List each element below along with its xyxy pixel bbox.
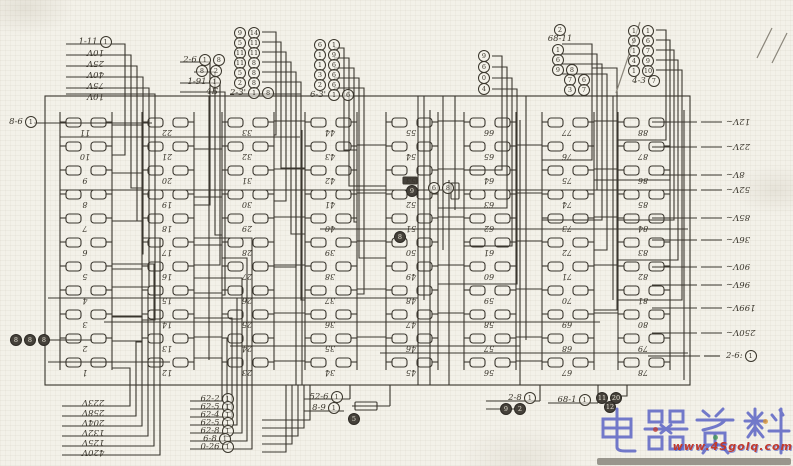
terminal-lug xyxy=(392,166,407,175)
rotated-label: 250V~ xyxy=(726,327,755,337)
terminal-number: 82 xyxy=(633,272,653,281)
rotated-label: 12V~ xyxy=(726,116,750,126)
inline-circle: 6 xyxy=(428,182,440,194)
code-label: 1-11 xyxy=(78,37,97,47)
terminal-lug xyxy=(548,310,563,319)
terminal-number: 60 xyxy=(479,272,499,281)
terminal-number: 20 xyxy=(157,176,177,185)
terminal-lug xyxy=(66,166,81,175)
pencil-mark xyxy=(772,33,787,63)
terminal-lug xyxy=(311,262,326,271)
rotated-label: 90V~ xyxy=(726,261,750,271)
circled-number: 1 xyxy=(579,394,591,406)
terminal-lug xyxy=(573,214,588,223)
terminal-lug xyxy=(336,190,351,199)
rotated-label: 132V xyxy=(82,427,104,437)
terminal-number: 74 xyxy=(557,200,577,209)
terminal-number: 35 xyxy=(320,344,340,353)
terminal-lug xyxy=(624,286,639,295)
wire xyxy=(334,78,386,258)
circled-number: 4 xyxy=(478,83,490,95)
terminal-number: 59 xyxy=(479,296,499,305)
terminal-lug xyxy=(228,262,243,271)
terminal-number: 46 xyxy=(401,344,421,353)
terminal-number: 1 xyxy=(75,368,95,377)
terminal-lug xyxy=(470,262,485,271)
terminal-lug xyxy=(548,142,563,151)
terminal-number: 36 xyxy=(320,320,340,329)
label-row: 68-11 xyxy=(532,34,588,44)
terminal-lug xyxy=(228,190,243,199)
terminal-number: 9 xyxy=(75,176,95,185)
inline-circle: 8 xyxy=(394,231,406,243)
terminal-lug xyxy=(392,262,407,271)
rotated-label: 10V xyxy=(87,47,104,57)
label-row: 132V xyxy=(62,427,124,437)
terminal-lug xyxy=(91,238,106,247)
terminal-lug xyxy=(392,118,407,127)
terminal-lug xyxy=(336,238,351,247)
terminal-number: 45 xyxy=(401,368,421,377)
scanned-wiring-diagram-page: 1110987654321222120191817161514131233323… xyxy=(0,0,793,466)
terminal-lug xyxy=(91,286,106,295)
terminal-lug xyxy=(173,238,188,247)
terminal-number: 2 xyxy=(75,344,95,353)
terminal-number: 53 xyxy=(401,176,421,185)
label-row: 85V~ xyxy=(726,212,780,222)
terminal-lug xyxy=(470,358,485,367)
terminal-lug xyxy=(228,238,243,247)
label-row: 37 xyxy=(532,84,620,96)
terminal-lug xyxy=(173,286,188,295)
terminal-number: 78 xyxy=(633,368,653,377)
terminal-lug xyxy=(470,214,485,223)
terminal-lug xyxy=(66,334,81,343)
terminal-lug xyxy=(311,118,326,127)
terminal-lug xyxy=(173,214,188,223)
terminal-number: 66 xyxy=(479,128,499,137)
terminal-lug xyxy=(573,310,588,319)
terminal-lug xyxy=(91,310,106,319)
terminal-lug xyxy=(311,310,326,319)
terminal-lug xyxy=(253,142,268,151)
terminal-number: 67 xyxy=(557,368,577,377)
terminal-lug xyxy=(253,118,268,127)
terminal-number: 64 xyxy=(479,176,499,185)
label-row: 4 xyxy=(478,83,500,95)
terminal-lug xyxy=(66,142,81,151)
pencil-mark xyxy=(757,28,772,58)
code-label: 1-91 xyxy=(187,77,206,87)
label-row: 223V xyxy=(62,397,124,407)
rotated-label: 52V~ xyxy=(726,184,750,194)
terminal-lug xyxy=(91,142,106,151)
watermark-url: www.4Sgolq.com xyxy=(673,440,793,453)
terminal-lug xyxy=(573,262,588,271)
terminal-lug xyxy=(66,310,81,319)
wire xyxy=(618,70,682,300)
terminal-number: 25 xyxy=(237,320,257,329)
circled-number: 8 xyxy=(24,334,36,346)
terminal-lug xyxy=(91,190,106,199)
terminal-lug xyxy=(495,214,510,223)
terminal-lug xyxy=(548,190,563,199)
terminal-lug xyxy=(624,190,639,199)
label-row: 4-37 xyxy=(628,75,664,87)
label-row: 2-3'18 xyxy=(234,87,270,99)
terminal-number: 75 xyxy=(557,176,577,185)
terminal-number: 22 xyxy=(157,128,177,137)
circled-number: 1 xyxy=(248,87,260,99)
terminal-number: 42 xyxy=(320,176,340,185)
terminal-lug xyxy=(392,334,407,343)
rotated-label: 420V xyxy=(82,447,104,457)
terminal-lug xyxy=(91,166,106,175)
code-label: 6-3' xyxy=(310,90,326,100)
circled-number: 1 xyxy=(328,89,340,101)
rotated-label: 25V xyxy=(87,58,104,68)
terminal-lug xyxy=(470,190,485,199)
terminal-number: 15 xyxy=(157,296,177,305)
terminal-lug xyxy=(624,214,639,223)
terminal-number: 19 xyxy=(157,200,177,209)
terminal-number: 83 xyxy=(633,248,653,257)
circled-number: 5 xyxy=(348,413,360,425)
terminal-lug xyxy=(573,334,588,343)
terminal-lug xyxy=(470,310,485,319)
terminal-number: 13 xyxy=(157,344,177,353)
terminal-lug xyxy=(392,310,407,319)
terminal-lug xyxy=(649,166,664,175)
terminal-number: 17 xyxy=(157,248,177,257)
terminal-lug xyxy=(548,286,563,295)
circled-number: 6 xyxy=(428,182,440,194)
terminal-lug xyxy=(392,286,407,295)
terminal-lug xyxy=(91,262,106,271)
terminal-lug xyxy=(253,214,268,223)
terminal-lug xyxy=(91,214,106,223)
terminal-lug xyxy=(173,334,188,343)
watermark-underline-bar xyxy=(597,458,791,465)
terminal-lug xyxy=(253,334,268,343)
terminal-lug xyxy=(495,358,510,367)
terminal-lug xyxy=(311,238,326,247)
label-row: 199V~ xyxy=(726,302,780,312)
terminal-lug xyxy=(253,190,268,199)
terminal-lug xyxy=(148,334,163,343)
terminal-number: 56 xyxy=(479,368,499,377)
label-row: 36V~ xyxy=(726,234,780,244)
rotated-label: 96V~ xyxy=(726,279,750,289)
terminal-lug xyxy=(173,190,188,199)
terminal-lug xyxy=(336,358,351,367)
label-row: 250V~ xyxy=(726,327,780,337)
wire xyxy=(464,78,512,246)
terminal-number: 41 xyxy=(320,200,340,209)
terminal-lug xyxy=(495,262,510,271)
terminal-lug xyxy=(311,334,326,343)
terminal-lug xyxy=(228,334,243,343)
terminal-lug xyxy=(573,142,588,151)
terminal-lug xyxy=(253,310,268,319)
code-label: 4Б xyxy=(206,87,218,97)
code-label: 8-6 xyxy=(9,117,23,127)
code-label: 52-6 xyxy=(309,392,328,402)
label-row: 10V xyxy=(66,91,124,101)
terminal-lug xyxy=(548,166,563,175)
terminal-number: 4 xyxy=(75,296,95,305)
circled-number: 9 xyxy=(406,185,418,197)
terminal-lug xyxy=(548,118,563,127)
terminal-lug xyxy=(228,118,243,127)
terminal-number: 44 xyxy=(320,128,340,137)
terminal-lug xyxy=(624,166,639,175)
circled-number: 8 xyxy=(394,231,406,243)
terminal-number: 27 xyxy=(237,272,257,281)
terminal-number: 50 xyxy=(401,248,421,257)
code-label: 4-3 xyxy=(632,76,646,86)
terminal-number: 63 xyxy=(479,200,499,209)
terminal-number: 24 xyxy=(237,344,257,353)
terminal-lug xyxy=(253,238,268,247)
terminal-lug xyxy=(649,334,664,343)
terminal-number: 12 xyxy=(157,368,177,377)
terminal-lug xyxy=(336,310,351,319)
terminal-lug xyxy=(311,214,326,223)
terminal-number: 11 xyxy=(75,128,95,137)
terminal-lug xyxy=(253,286,268,295)
rotated-label: 75V xyxy=(87,80,104,90)
terminal-lug xyxy=(573,118,588,127)
terminal-lug xyxy=(649,286,664,295)
terminal-number: 65 xyxy=(479,152,499,161)
terminal-lug xyxy=(311,166,326,175)
rotated-label: 85V~ xyxy=(726,212,750,222)
terminal-lug xyxy=(253,166,268,175)
label-row: 10V xyxy=(66,47,124,57)
terminal-number: 14 xyxy=(157,320,177,329)
code-label: 68-1 xyxy=(557,395,576,405)
terminal-lug xyxy=(173,262,188,271)
label-row: 52V~ xyxy=(726,184,780,194)
terminal-number: 38 xyxy=(320,272,340,281)
label-row: 96V~ xyxy=(726,279,780,289)
terminal-lug xyxy=(66,286,81,295)
terminal-lug xyxy=(573,166,588,175)
terminal-lug xyxy=(573,286,588,295)
watermark-speckle xyxy=(653,427,658,432)
terminal-lug xyxy=(173,358,188,367)
code-label: 8-9 xyxy=(312,403,326,413)
terminal-lug xyxy=(336,262,351,271)
circled-number: 1 xyxy=(25,116,37,128)
terminal-number: 71 xyxy=(557,272,577,281)
code-label: 0-26 xyxy=(200,442,219,452)
terminal-lug xyxy=(173,310,188,319)
circled-number: 3 xyxy=(564,84,576,96)
terminal-lug xyxy=(573,190,588,199)
terminal-number: 54 xyxy=(401,152,421,161)
terminal-number: 84 xyxy=(633,224,653,233)
terminal-lug xyxy=(649,190,664,199)
terminal-lug xyxy=(173,142,188,151)
watermark: 电器资料 xyxy=(595,405,793,466)
watermark-speckle xyxy=(763,419,768,424)
terminal-number: 49 xyxy=(401,272,421,281)
label-row: 8V~ xyxy=(726,169,780,179)
terminal-number: 55 xyxy=(401,128,421,137)
terminal-lug xyxy=(548,262,563,271)
terminal-lug xyxy=(66,238,81,247)
terminal-lug xyxy=(649,358,664,367)
terminal-number: 40 xyxy=(320,224,340,233)
label-row: 4Б xyxy=(180,87,236,97)
terminal-number: 79 xyxy=(633,344,653,353)
terminal-number: 85 xyxy=(633,200,653,209)
label-row: 92 xyxy=(486,403,552,415)
terminal-lug xyxy=(548,358,563,367)
circled-number: 8 xyxy=(442,182,454,194)
terminal-number: 32 xyxy=(237,152,257,161)
terminal-lug xyxy=(336,214,351,223)
rotated-label: 258V xyxy=(82,407,104,417)
label-row: 75V xyxy=(66,80,124,90)
terminal-number: 68 xyxy=(557,344,577,353)
terminal-number: 43 xyxy=(320,152,340,161)
terminal-lug xyxy=(624,238,639,247)
rotated-label: 204V xyxy=(82,417,104,427)
circled-number: 8 xyxy=(10,334,22,346)
rotated-label: 22V~ xyxy=(726,141,750,151)
terminal-lug xyxy=(624,262,639,271)
terminal-number: 23 xyxy=(237,368,257,377)
terminal-lug xyxy=(173,166,188,175)
terminal-lug xyxy=(495,334,510,343)
terminal-lug xyxy=(624,358,639,367)
terminal-lug xyxy=(228,286,243,295)
terminal-number: 52 xyxy=(401,200,421,209)
rotated-label: 223V xyxy=(82,397,104,407)
terminal-lug xyxy=(495,190,510,199)
terminal-lug xyxy=(228,142,243,151)
terminal-number: 18 xyxy=(157,224,177,233)
terminal-number: 61 xyxy=(479,248,499,257)
terminal-lug xyxy=(548,214,563,223)
terminal-number: 7 xyxy=(75,224,95,233)
circled-number: 6 xyxy=(342,89,354,101)
terminal-number: 81 xyxy=(633,296,653,305)
terminal-number: 86 xyxy=(633,176,653,185)
left-circle-trio: 888 xyxy=(10,334,50,346)
circled-number: 7 xyxy=(648,75,660,87)
terminal-number: 48 xyxy=(401,296,421,305)
circled-number: 8 xyxy=(38,334,50,346)
terminal-number: 70 xyxy=(557,296,577,305)
terminal-number: 72 xyxy=(557,248,577,257)
terminal-number: 8 xyxy=(75,200,95,209)
label-row: 125V xyxy=(62,437,124,447)
rotated-label: 40V xyxy=(87,69,104,79)
terminal-lug xyxy=(311,358,326,367)
terminal-number: 80 xyxy=(633,320,653,329)
inline-circle: 9 xyxy=(406,185,418,197)
terminal-lug xyxy=(624,334,639,343)
label-row: 5 xyxy=(302,413,396,425)
terminal-number: 77 xyxy=(557,128,577,137)
terminal-number: 10 xyxy=(75,152,95,161)
circled-number: 7 xyxy=(578,84,590,96)
terminal-number: 69 xyxy=(557,320,577,329)
label-row: 8-61 xyxy=(2,116,44,128)
code-label: 2-3' xyxy=(230,88,246,98)
terminal-lug xyxy=(495,286,510,295)
terminal-number: 37 xyxy=(320,296,340,305)
terminal-lug xyxy=(336,286,351,295)
terminal-lug xyxy=(66,214,81,223)
inline-circle: 8 xyxy=(442,182,454,194)
terminal-number: 39 xyxy=(320,248,340,257)
code-label: 2-6 xyxy=(183,55,197,65)
label-row: 40V xyxy=(66,69,124,79)
terminal-number: 57 xyxy=(479,344,499,353)
rotated-label: 10V xyxy=(87,91,104,101)
terminal-number: 16 xyxy=(157,272,177,281)
circled-number: 2 xyxy=(514,403,526,415)
terminal-lug xyxy=(495,310,510,319)
terminal-lug xyxy=(649,310,664,319)
label-row: 6-3'16 xyxy=(314,89,350,101)
rotated-label: 36V~ xyxy=(726,234,750,244)
terminal-number: 3 xyxy=(75,320,95,329)
terminal-lug xyxy=(649,238,664,247)
label-row: 12V~ xyxy=(726,116,780,126)
terminal-number: 21 xyxy=(157,152,177,161)
terminal-lug xyxy=(311,190,326,199)
terminal-lug xyxy=(253,358,268,367)
terminal-number: 87 xyxy=(633,152,653,161)
terminal-lug xyxy=(253,262,268,271)
circled-number: 9 xyxy=(500,403,512,415)
terminal-number: 31 xyxy=(237,176,257,185)
terminal-lug xyxy=(470,142,485,151)
terminal-number: 26 xyxy=(237,296,257,305)
label-row: 90V~ xyxy=(726,261,780,271)
terminal-lug xyxy=(470,118,485,127)
code-label: 68-11 xyxy=(548,34,573,44)
terminal-lug xyxy=(336,334,351,343)
terminal-lug xyxy=(311,142,326,151)
terminal-lug xyxy=(311,286,326,295)
terminal-lug xyxy=(66,262,81,271)
terminal-number: 47 xyxy=(401,320,421,329)
rotated-label: 199V~ xyxy=(726,302,755,312)
circled-number: 1 xyxy=(745,350,757,362)
code-label: 2-6: xyxy=(726,351,743,361)
label-row: 204V xyxy=(62,417,124,427)
label-row: 0-261 xyxy=(190,441,244,453)
terminal-number: 30 xyxy=(237,200,257,209)
terminal-number: 6 xyxy=(75,248,95,257)
label-row: 25V xyxy=(66,58,124,68)
terminal-number: 29 xyxy=(237,224,257,233)
rotated-label: 8V~ xyxy=(726,169,745,179)
terminal-lug xyxy=(624,310,639,319)
terminal-lug xyxy=(392,142,407,151)
terminal-lug xyxy=(548,238,563,247)
terminal-lug xyxy=(624,142,639,151)
circled-number: 8 xyxy=(262,87,274,99)
terminal-lug xyxy=(573,358,588,367)
